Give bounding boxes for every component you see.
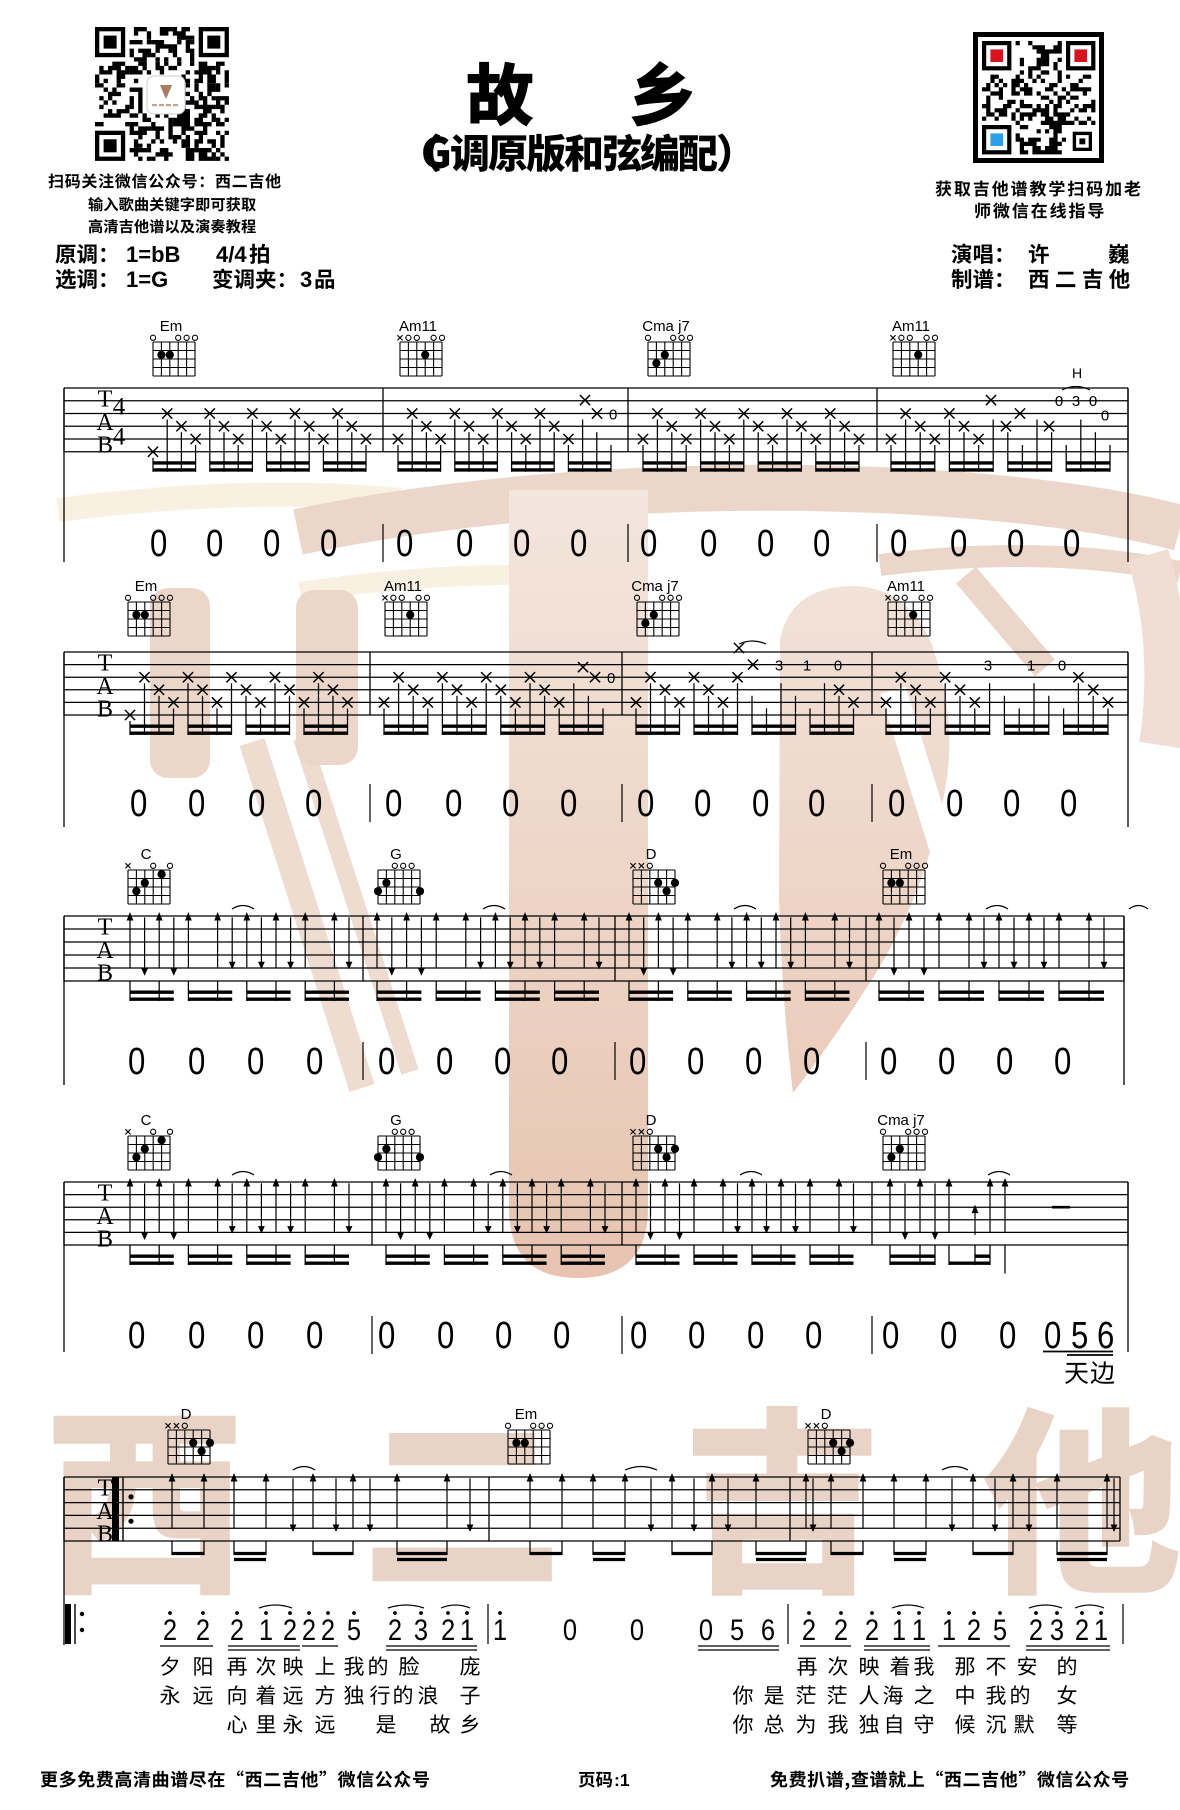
svg-text:2: 2 xyxy=(865,1613,879,1646)
svg-text:6: 6 xyxy=(1097,1315,1114,1357)
svg-text:2: 2 xyxy=(388,1613,402,1646)
svg-text:4: 4 xyxy=(113,424,126,451)
svg-text:0: 0 xyxy=(890,523,907,565)
svg-text:0: 0 xyxy=(305,783,322,825)
svg-text:0: 0 xyxy=(1054,1041,1071,1083)
svg-text:0: 0 xyxy=(553,1315,570,1357)
svg-text:0: 0 xyxy=(247,1315,264,1357)
svg-text:T: T xyxy=(98,915,113,941)
svg-text:0: 0 xyxy=(607,670,615,687)
svg-text:0: 0 xyxy=(700,523,717,565)
svg-text:0: 0 xyxy=(687,1041,704,1083)
svg-text:0: 0 xyxy=(128,1315,145,1357)
svg-text:1: 1 xyxy=(892,1613,906,1646)
svg-text:0: 0 xyxy=(640,523,657,565)
svg-text:Em: Em xyxy=(515,1406,538,1423)
svg-text:0: 0 xyxy=(378,1041,395,1083)
svg-text:1: 1 xyxy=(1094,1613,1108,1646)
svg-text:Em: Em xyxy=(160,318,183,335)
svg-text:0: 0 xyxy=(502,783,519,825)
svg-text:Am11: Am11 xyxy=(399,318,437,335)
svg-text:3: 3 xyxy=(775,657,783,674)
svg-text:0: 0 xyxy=(1089,393,1097,410)
svg-text:0: 0 xyxy=(1007,523,1024,565)
svg-text:0: 0 xyxy=(1063,523,1080,565)
svg-text:0: 0 xyxy=(747,1315,764,1357)
svg-text:G: G xyxy=(390,846,402,863)
svg-text:0: 0 xyxy=(630,1315,647,1357)
svg-text:0: 0 xyxy=(834,657,842,674)
svg-text:Am11: Am11 xyxy=(892,318,930,335)
svg-text:C: C xyxy=(141,1112,152,1129)
svg-text:5: 5 xyxy=(993,1613,1007,1646)
svg-text:0: 0 xyxy=(551,1041,568,1083)
svg-text:0: 0 xyxy=(752,783,769,825)
svg-text:Am11: Am11 xyxy=(887,578,925,595)
svg-text:0: 0 xyxy=(609,407,617,424)
svg-text:0: 0 xyxy=(188,783,205,825)
svg-text:D: D xyxy=(821,1406,832,1423)
svg-text:0: 0 xyxy=(946,783,963,825)
svg-text:3: 3 xyxy=(1072,393,1080,410)
svg-text:B: B xyxy=(97,961,113,987)
svg-text:3: 3 xyxy=(414,1613,428,1646)
svg-text:2: 2 xyxy=(834,1613,848,1646)
svg-text:0: 0 xyxy=(263,523,280,565)
svg-text:Cma j7: Cma j7 xyxy=(631,578,679,595)
svg-text:1: 1 xyxy=(1027,657,1035,674)
svg-text:0: 0 xyxy=(188,1041,205,1083)
svg-text:1=bB: 1=bB xyxy=(126,242,180,267)
svg-text:0: 0 xyxy=(494,1041,511,1083)
svg-text:0: 0 xyxy=(637,783,654,825)
svg-text:0: 0 xyxy=(445,783,462,825)
svg-text:0: 0 xyxy=(938,1041,955,1083)
svg-text:1: 1 xyxy=(912,1613,926,1646)
svg-text:0: 0 xyxy=(629,1041,646,1083)
svg-text:B: B xyxy=(97,697,113,723)
svg-text:2: 2 xyxy=(321,1613,335,1646)
svg-text:0: 0 xyxy=(757,523,774,565)
svg-text:0: 0 xyxy=(813,523,830,565)
svg-text:T: T xyxy=(98,387,113,413)
svg-text:0: 0 xyxy=(513,523,530,565)
svg-text:0: 0 xyxy=(188,1315,205,1357)
svg-text:B: B xyxy=(97,433,113,459)
svg-text:1=G: 1=G xyxy=(126,267,168,292)
svg-text:2: 2 xyxy=(1075,1613,1089,1646)
svg-text:0: 0 xyxy=(1044,1315,1061,1357)
svg-text:3: 3 xyxy=(300,267,312,292)
svg-text:3: 3 xyxy=(984,657,992,674)
svg-text:0: 0 xyxy=(694,783,711,825)
svg-text:0: 0 xyxy=(248,783,265,825)
svg-text:0: 0 xyxy=(206,523,223,565)
svg-text:Cma j7: Cma j7 xyxy=(642,318,690,335)
svg-text:0: 0 xyxy=(950,523,967,565)
svg-text:0: 0 xyxy=(808,783,825,825)
svg-text:0: 0 xyxy=(560,783,577,825)
svg-text:0: 0 xyxy=(396,523,413,565)
svg-text:0: 0 xyxy=(320,523,337,565)
svg-text:5: 5 xyxy=(730,1613,744,1646)
svg-text:0: 0 xyxy=(378,1315,395,1357)
svg-text:3: 3 xyxy=(1050,1613,1064,1646)
svg-text:2: 2 xyxy=(802,1613,816,1646)
svg-text:D: D xyxy=(646,1112,657,1129)
svg-text:0: 0 xyxy=(999,1315,1016,1357)
svg-text:0: 0 xyxy=(306,1315,323,1357)
svg-text:H: H xyxy=(1072,365,1082,381)
svg-text:Cma j7: Cma j7 xyxy=(877,1112,925,1129)
svg-text:0: 0 xyxy=(150,523,167,565)
svg-text:0: 0 xyxy=(128,1041,145,1083)
svg-text:1: 1 xyxy=(803,657,811,674)
svg-text:0: 0 xyxy=(1101,407,1109,424)
svg-text:0: 0 xyxy=(882,1315,899,1357)
svg-text:T: T xyxy=(98,1181,113,1207)
svg-text:0: 0 xyxy=(880,1041,897,1083)
svg-text:0: 0 xyxy=(570,523,587,565)
svg-text:1: 1 xyxy=(942,1613,956,1646)
svg-text:Em: Em xyxy=(890,846,913,863)
svg-text:T: T xyxy=(98,1476,113,1502)
svg-text:0: 0 xyxy=(456,523,473,565)
svg-text:2: 2 xyxy=(1029,1613,1043,1646)
svg-text:5: 5 xyxy=(347,1613,361,1646)
svg-text:D: D xyxy=(181,1406,192,1423)
svg-text:5: 5 xyxy=(1071,1315,1088,1357)
svg-text:0: 0 xyxy=(1058,657,1066,674)
svg-text:2: 2 xyxy=(283,1613,297,1646)
svg-text:0: 0 xyxy=(745,1041,762,1083)
svg-text:0: 0 xyxy=(1060,783,1077,825)
svg-text:2: 2 xyxy=(196,1613,210,1646)
svg-text:0: 0 xyxy=(130,783,147,825)
svg-text:B: B xyxy=(97,1522,113,1548)
svg-text:0: 0 xyxy=(436,1041,453,1083)
svg-text:6: 6 xyxy=(761,1613,775,1646)
svg-text:0: 0 xyxy=(805,1315,822,1357)
svg-text:0: 0 xyxy=(688,1315,705,1357)
svg-text:0: 0 xyxy=(699,1613,713,1646)
svg-text:T: T xyxy=(98,651,113,677)
svg-text:2: 2 xyxy=(230,1613,244,1646)
svg-text:G: G xyxy=(390,1112,402,1129)
svg-text:Am11: Am11 xyxy=(384,578,422,595)
svg-text:0: 0 xyxy=(803,1041,820,1083)
svg-text:0: 0 xyxy=(385,783,402,825)
svg-text:0: 0 xyxy=(247,1041,264,1083)
svg-text:1: 1 xyxy=(493,1613,507,1646)
svg-text:0: 0 xyxy=(630,1613,644,1646)
svg-text::1: :1 xyxy=(614,1770,630,1790)
svg-text:4: 4 xyxy=(113,394,126,421)
svg-text:0: 0 xyxy=(1055,393,1063,410)
svg-text:0: 0 xyxy=(1003,783,1020,825)
svg-text:D: D xyxy=(646,846,657,863)
svg-text:C: C xyxy=(141,846,152,863)
svg-text:0: 0 xyxy=(563,1613,577,1646)
svg-text:0: 0 xyxy=(940,1315,957,1357)
svg-text:0: 0 xyxy=(888,783,905,825)
svg-text:2: 2 xyxy=(302,1613,316,1646)
svg-text:2: 2 xyxy=(163,1613,177,1646)
svg-text:0: 0 xyxy=(495,1315,512,1357)
svg-text:0: 0 xyxy=(996,1041,1013,1083)
svg-text:Em: Em xyxy=(135,578,158,595)
svg-text:2: 2 xyxy=(967,1613,981,1646)
svg-text:1: 1 xyxy=(259,1613,273,1646)
svg-text:2: 2 xyxy=(441,1613,455,1646)
svg-text:0: 0 xyxy=(306,1041,323,1083)
svg-text:1: 1 xyxy=(460,1613,474,1646)
svg-text:B: B xyxy=(97,1227,113,1253)
svg-text:0: 0 xyxy=(437,1315,454,1357)
svg-text:4/4: 4/4 xyxy=(216,242,247,267)
